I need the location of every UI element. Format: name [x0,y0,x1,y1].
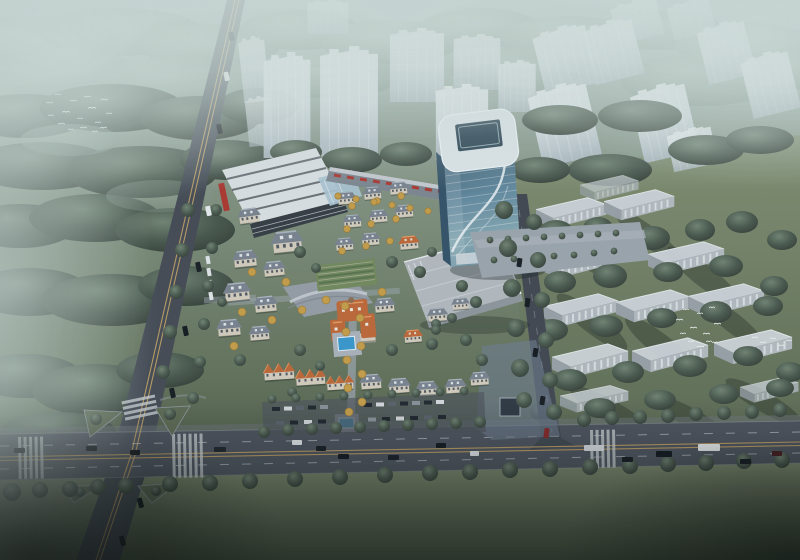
aerial-rendering [0,0,800,560]
vignette [0,400,800,560]
